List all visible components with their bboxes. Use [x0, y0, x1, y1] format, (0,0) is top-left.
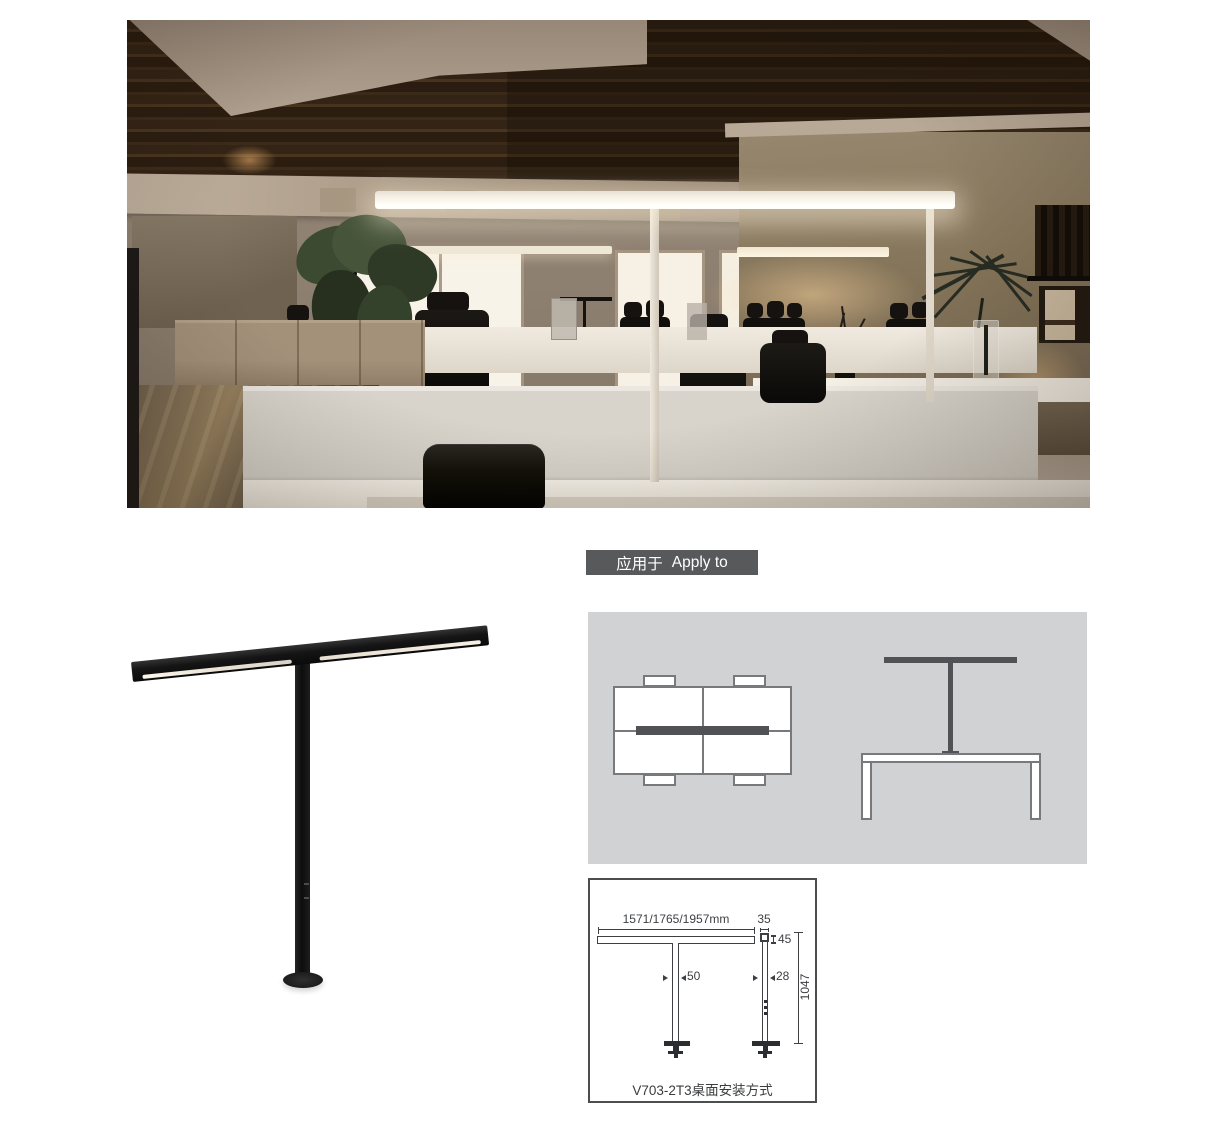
dim-line-head-width — [760, 929, 769, 930]
led-strip — [319, 640, 481, 661]
lamp-pole-button — [304, 883, 309, 885]
dim-overall-height: 1047 — [798, 965, 812, 1009]
application-panel — [588, 612, 1087, 864]
dim-head-height-group: 45 — [771, 932, 791, 946]
lamp-pole-button — [304, 897, 309, 899]
dim-head-height: 45 — [778, 932, 791, 946]
lamp-light-bar — [131, 625, 489, 682]
clamp-tip — [763, 1054, 767, 1058]
lamp-base — [283, 972, 323, 988]
lamp-pole-outline-front — [672, 943, 679, 1042]
dim-tick — [754, 927, 755, 934]
desk-chair-tab — [733, 774, 766, 786]
installation-drawing: 1571/1765/1957mm 50 35 45 28 1047 V703-2… — [588, 878, 817, 1103]
desk-chair-tab — [643, 774, 676, 786]
dim-front-pole-width: 50 — [687, 969, 700, 983]
drawing-caption: V703-2T3桌面安装方式 — [590, 1079, 815, 1099]
lamp-pole — [295, 660, 310, 978]
dim-line-bar-length — [598, 929, 755, 930]
lamp-pole-frontview — [948, 663, 953, 755]
desk-top-frontview — [861, 753, 1041, 763]
dim-tick — [768, 928, 769, 932]
clamp-tip — [674, 1054, 678, 1058]
apply-to-badge: 应用于 Apply to — [586, 550, 758, 575]
apply-to-label-zh: 应用于 — [616, 552, 663, 574]
lamp-pole-outline-side — [762, 942, 768, 1042]
pole-adjust-dot — [764, 1012, 767, 1015]
dim-arrow-left — [681, 975, 686, 981]
dim-tick — [794, 932, 803, 933]
dim-arrow-right — [663, 975, 668, 981]
dim-arrow-right — [753, 975, 758, 981]
desk-leg — [1030, 761, 1041, 820]
dim-ibeam-mark — [771, 935, 776, 944]
lamp-bar-section — [760, 933, 769, 942]
dim-tick — [598, 927, 599, 934]
office-photo — [127, 20, 1090, 508]
pole-adjust-dot — [764, 1000, 767, 1003]
dim-head-width: 35 — [748, 912, 780, 926]
product-shot — [128, 606, 508, 1001]
desk-leg — [861, 761, 872, 820]
apply-to-label-en: Apply to — [672, 554, 728, 572]
led-strip — [142, 660, 292, 679]
dim-tick — [760, 928, 761, 932]
dim-bar-length: 1571/1765/1957mm — [597, 912, 755, 926]
dim-tick — [794, 1043, 803, 1044]
dim-side-pole-width: 28 — [776, 969, 789, 983]
dim-arrow-left — [770, 975, 775, 981]
pole-adjust-dot — [764, 1006, 767, 1009]
catalog-page: { "page": { "background": "#ffffff" }, "… — [0, 0, 1211, 1140]
light-bar-topview — [636, 726, 769, 735]
photo-top-shade — [127, 20, 1090, 508]
